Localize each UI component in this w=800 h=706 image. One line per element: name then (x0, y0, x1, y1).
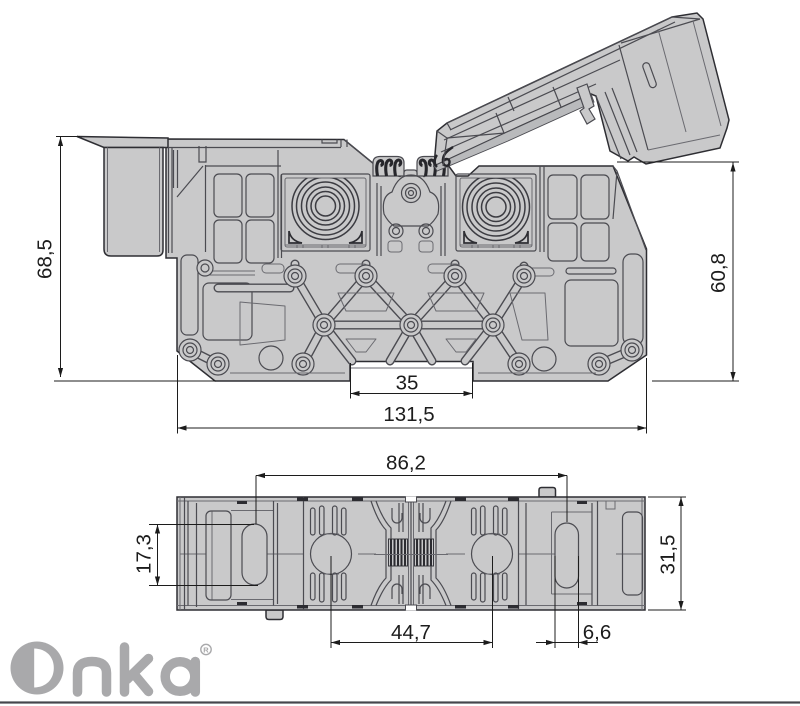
svg-text:35: 35 (396, 372, 419, 395)
svg-text:17,3: 17,3 (133, 534, 156, 574)
svg-text:86,2: 86,2 (386, 452, 426, 475)
svg-text:60,8: 60,8 (707, 253, 730, 293)
svg-text:131,5: 131,5 (383, 403, 434, 426)
svg-text:31,5: 31,5 (657, 535, 680, 575)
svg-text:68,5: 68,5 (34, 239, 57, 279)
svg-text:R: R (203, 646, 209, 655)
svg-text:6,6: 6,6 (583, 621, 612, 644)
svg-text:44,7: 44,7 (391, 621, 431, 644)
